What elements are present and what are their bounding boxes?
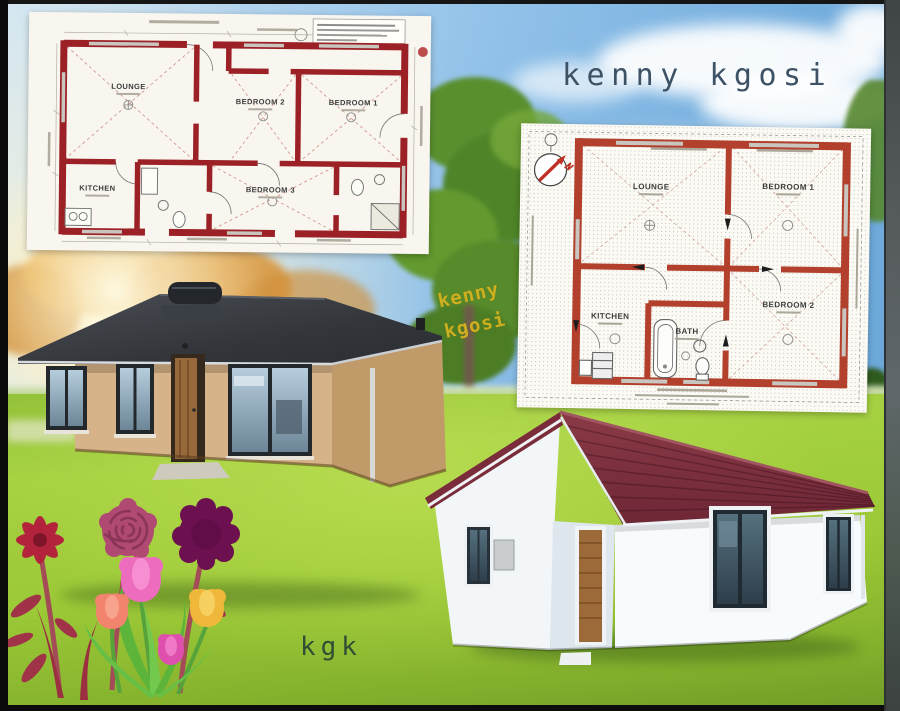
room-label-kitchen: KITCHEN <box>79 183 115 192</box>
front-door <box>171 354 205 462</box>
door-step <box>559 652 591 665</box>
downpipe <box>370 368 375 482</box>
dimension-text-smudges <box>47 19 424 242</box>
room-label-bedroom1: BEDROOM 1 <box>329 98 378 108</box>
porch-light <box>182 343 188 349</box>
dimension-lines <box>52 29 418 248</box>
room-label-bedroom2: BEDROOM 2 <box>762 300 814 310</box>
ceiling-diagonals <box>579 145 843 380</box>
white-house-illustration <box>415 403 880 695</box>
plan-fixtures <box>65 167 400 229</box>
plan-inner-walls <box>62 43 405 235</box>
plan-stamp-dot <box>418 47 428 57</box>
downpipe <box>861 515 865 599</box>
flower-magenta-tulip <box>158 634 184 665</box>
flower-yellow-tulip <box>189 589 226 627</box>
floorplan-right: LOUNGE BEDROOM 1 KITCHEN BATH BEDROOM 2 <box>517 123 871 412</box>
floorplan-left: LOUNGE BEDROOM 2 BEDROOM 1 KITCHEN BEDRO… <box>27 12 431 254</box>
meter-box <box>494 540 514 570</box>
roof-vent <box>416 318 425 330</box>
signature-text: kgk <box>300 632 362 662</box>
front-door <box>575 526 606 645</box>
front-window <box>44 366 89 434</box>
side-window <box>709 506 771 612</box>
frame-top <box>0 0 900 4</box>
frame-left <box>0 0 8 711</box>
frame-bottom <box>0 705 900 711</box>
room-label-bedroom3: BEDROOM 3 <box>246 185 295 195</box>
front-window <box>114 364 156 438</box>
title-text: kenny kgosi <box>562 58 882 93</box>
flower-rose <box>99 498 157 559</box>
room-label-bath: BATH <box>675 327 698 336</box>
room-label-bedroom2: BEDROOM 2 <box>236 97 285 107</box>
room-label-bedroom1: BEDROOM 1 <box>762 182 814 192</box>
flower-cluster <box>0 478 262 711</box>
room-label-lounge: LOUNGE <box>633 182 670 192</box>
flower-purple-pom <box>172 498 240 570</box>
side-window <box>823 514 854 594</box>
flower-red-daisy <box>16 516 64 564</box>
light-symbols <box>610 218 795 362</box>
flower-coral-tulip <box>95 593 129 629</box>
room-label-lounge: LOUNGE <box>111 82 146 91</box>
frame-right <box>884 0 900 711</box>
front-window-large <box>226 364 314 460</box>
gable-window <box>464 524 493 587</box>
plan-inner-walls <box>575 142 847 384</box>
room-label-kitchen: KITCHEN <box>591 311 629 321</box>
plan-walls <box>575 138 847 388</box>
collage-scene: LOUNGE BEDROOM 2 BEDROOM 1 KITCHEN BEDRO… <box>0 0 900 711</box>
window-lintels <box>575 142 847 384</box>
room-sub-smudges <box>85 93 365 200</box>
compass-north-icon <box>534 133 574 186</box>
